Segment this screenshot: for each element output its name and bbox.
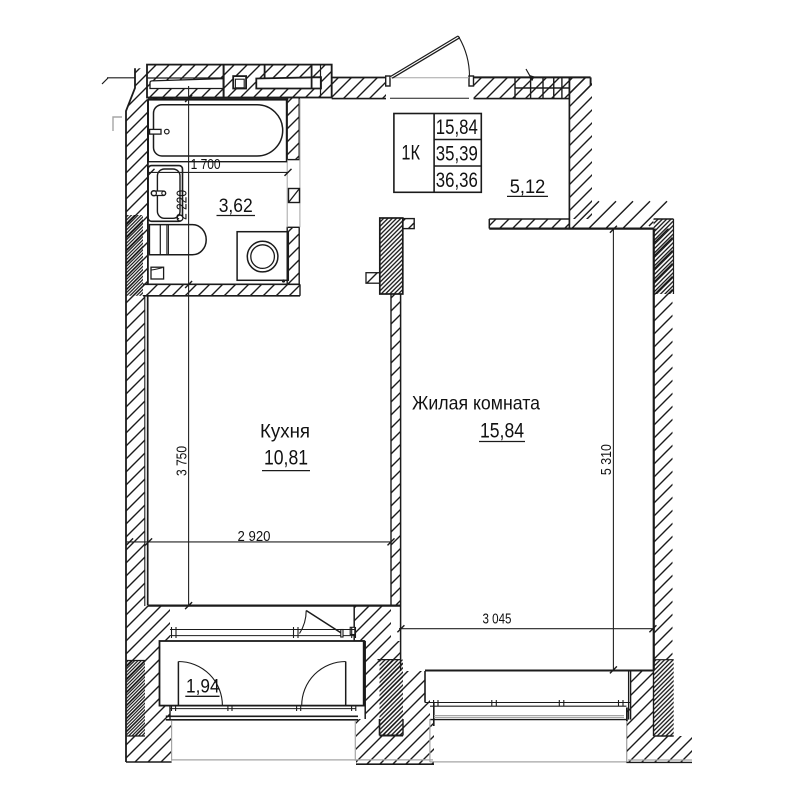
- svg-text:35,39: 35,39: [436, 142, 478, 166]
- svg-text:5,12: 5,12: [510, 176, 546, 198]
- svg-text:15,84: 15,84: [480, 419, 524, 443]
- svg-text:1,94: 1,94: [186, 677, 220, 698]
- svg-text:Жилая комната: Жилая комната: [412, 393, 540, 415]
- svg-text:3,62: 3,62: [219, 195, 253, 217]
- svg-text:36,36: 36,36: [436, 168, 478, 192]
- svg-text:Кухня: Кухня: [260, 421, 310, 443]
- svg-text:15,84: 15,84: [436, 115, 478, 139]
- svg-text:2 920: 2 920: [238, 529, 271, 545]
- svg-text:10,81: 10,81: [264, 446, 308, 470]
- svg-text:3 750: 3 750: [174, 446, 190, 476]
- svg-text:1К: 1К: [401, 140, 420, 164]
- svg-text:2 220: 2 220: [175, 190, 191, 220]
- svg-text:1 700: 1 700: [191, 157, 221, 173]
- svg-text:5 310: 5 310: [599, 444, 615, 475]
- svg-text:3 045: 3 045: [483, 612, 512, 628]
